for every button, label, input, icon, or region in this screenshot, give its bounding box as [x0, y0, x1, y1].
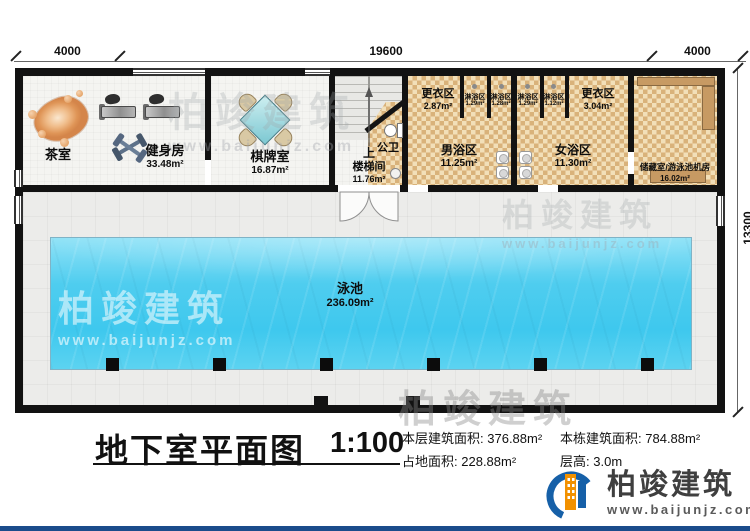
stat-floor-area: 本层建筑面积: 376.88m²: [402, 428, 542, 447]
label-male-bath-area: 11.25m²: [424, 158, 494, 170]
title-underline: [93, 463, 400, 465]
label-chess-area: 16.87m²: [230, 165, 310, 177]
label-female-bath: 女浴区: [538, 144, 608, 158]
label-pool-area: 236.09m²: [315, 297, 385, 310]
label-stairwell-area: 11.76m²: [334, 174, 404, 184]
footer-accent-bar: [0, 526, 750, 531]
door-leaf: [369, 192, 398, 221]
label-shower-stall: 淋浴区1.29m²: [463, 94, 487, 108]
drawing-scale: 1:100: [330, 427, 404, 460]
label-storage: 储藏室/游泳池机房: [628, 163, 722, 173]
company-name: 柏竣建筑: [607, 471, 750, 500]
company-logo: 柏竣建筑 www.baijunjz.com: [543, 466, 750, 522]
label-locker-right-area: 3.04m²: [568, 101, 628, 111]
stair-up-arrowhead: [365, 87, 373, 97]
diagonal-wall: [366, 101, 405, 131]
label-locker-right: 更衣区: [568, 88, 628, 101]
stat-land-area: 占地面积: 228.88m²: [402, 451, 516, 470]
label-shower-stall: 淋浴区1.28m²: [489, 94, 513, 108]
label-gym: 健身房: [130, 144, 200, 159]
floor-plan-sheet: 4000 19600 4000 13300: [0, 0, 750, 531]
stat-building-total-area: 本栋建筑面积: 784.88m²: [560, 428, 700, 447]
label-shower-stall: 淋浴区1.29m²: [516, 94, 540, 108]
label-pool: 泳池: [315, 282, 385, 297]
label-locker-left-area: 2.87m²: [408, 101, 468, 111]
label-female-bath-area: 11.30m²: [538, 158, 608, 170]
label-wc: 公卫: [368, 142, 408, 155]
label-male-bath: 男浴区: [424, 144, 494, 158]
door-leaf: [340, 192, 369, 221]
logo-icon: [543, 466, 599, 522]
company-url: www.baijunjz.com: [607, 502, 750, 517]
label-storage-area: 16.02m²: [628, 174, 722, 183]
label-gym-area: 33.48m²: [130, 159, 200, 171]
label-stairwell: 楼梯间: [334, 161, 404, 174]
label-tea-room: 茶室: [28, 148, 88, 163]
label-chess-room: 棋牌室: [230, 150, 310, 165]
label-shower-stall: 淋浴区1.12m²: [542, 94, 566, 108]
label-locker-left: 更衣区: [408, 88, 468, 101]
